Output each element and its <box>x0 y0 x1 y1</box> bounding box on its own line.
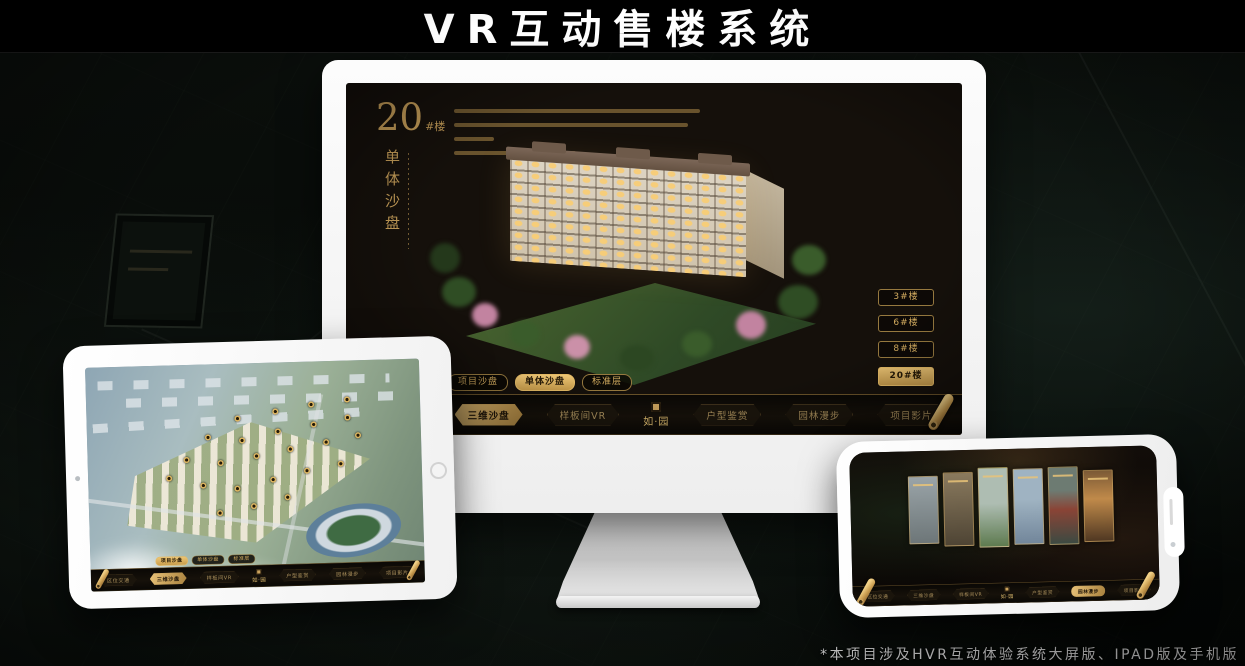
nav-left-group: 区位交通三维沙盘样板间VR <box>100 571 239 587</box>
scene-card[interactable] <box>908 476 940 545</box>
floor-button[interactable]: 6#楼 <box>878 315 934 332</box>
floor-button-group: 3#楼6#楼8#楼20#楼 <box>878 289 934 386</box>
tablet-camera-icon <box>75 476 80 481</box>
building-badge-icon <box>344 414 350 420</box>
aerial-building-row <box>126 391 410 408</box>
building-3d-render[interactable] <box>424 135 860 393</box>
tablet-home-button[interactable] <box>430 461 447 478</box>
sub-tab[interactable]: 项目沙盘 <box>155 556 188 566</box>
building-badge-icon <box>355 432 361 438</box>
nav-item[interactable]: 户型鉴赏 <box>279 568 316 581</box>
vertical-divider <box>408 153 409 249</box>
building-badge-icon <box>323 439 329 445</box>
tree-blob <box>620 345 654 371</box>
nav-item[interactable]: 样板间VR <box>547 404 620 426</box>
building-badge-icon <box>311 421 317 427</box>
background-plaque <box>104 213 214 328</box>
nav-item[interactable]: 样板间VR <box>952 588 988 600</box>
block-unit: #楼 <box>425 120 445 133</box>
tree-blob <box>778 285 818 319</box>
aerial-building-row <box>97 373 389 390</box>
nav-item[interactable]: 三维沙盘 <box>150 572 187 585</box>
building-badge-icon <box>205 434 211 440</box>
floor-button[interactable]: 20#楼 <box>878 367 934 386</box>
promo-canvas: VR互动售楼系统 20#楼 单体沙盘 <box>0 0 1245 666</box>
footnote-text: *本项目涉及HVR互动体验系统大屏版、IPAD版及手机版 <box>820 644 1239 664</box>
page-title: VR互动售楼系统 <box>0 0 1245 53</box>
tree-blob <box>564 335 590 359</box>
brand-logo: 如·园 <box>643 402 669 428</box>
nav-left-group: 区位交通三维沙盘样板间VR <box>861 588 989 602</box>
brand-seal-icon <box>1005 586 1010 591</box>
camera-dot-icon <box>1170 542 1175 547</box>
brand-logo: 如·园 <box>252 569 267 583</box>
sandtable-badges <box>85 359 419 368</box>
nav-item[interactable]: 三维沙盘 <box>907 589 941 601</box>
tree-blob <box>510 321 540 347</box>
tree-blob <box>442 277 476 307</box>
aerial-building-row <box>93 408 361 434</box>
brand-logo-text: 如·园 <box>643 413 669 428</box>
section-title-vertical: 单体沙盘 <box>382 149 403 237</box>
brand-seal-icon <box>256 569 262 575</box>
stadium <box>302 496 406 565</box>
sub-tab-bar: 项目沙盘单体沙盘标准层 <box>448 374 632 391</box>
scene-card[interactable] <box>1013 468 1045 545</box>
nav-right-group: 户型鉴赏园林漫步项目影片 <box>1025 584 1151 598</box>
brand-logo-text: 如·园 <box>252 575 266 584</box>
phone-screen: 区位交通三维沙盘样板间VR 如·园 户型鉴赏园林漫步项目影片 <box>849 445 1160 606</box>
floor-button[interactable]: 3#楼 <box>878 289 934 306</box>
nav-item[interactable]: 户型鉴赏 <box>1025 586 1059 598</box>
speaker-slot-icon <box>1169 499 1173 525</box>
scene-card[interactable] <box>978 467 1010 548</box>
scene-card[interactable] <box>943 472 975 547</box>
tree-blob <box>792 245 826 275</box>
floor-button[interactable]: 8#楼 <box>878 341 934 358</box>
tree-blob <box>430 243 460 273</box>
tablet-app-ui: 项目沙盘单体沙盘标准层 区位交通三维沙盘样板间VR 如·园 户型鉴赏园林漫步项目… <box>91 582 425 591</box>
nav-item[interactable]: 园林漫步 <box>785 404 853 426</box>
tree-blob <box>682 331 712 357</box>
tree-blob <box>736 311 766 339</box>
phone-app-ui: 区位交通三维沙盘样板间VR 如·园 户型鉴赏园林漫步项目影片 <box>853 599 1160 606</box>
nav-right-group: 户型鉴赏园林漫步项目影片 <box>279 566 416 582</box>
brand-seal-icon <box>651 402 661 412</box>
sub-tab[interactable]: 项目沙盘 <box>448 374 508 391</box>
tree-blob <box>472 303 498 327</box>
scene-card-gallery <box>908 464 1115 549</box>
building-front-face <box>510 157 746 278</box>
nav-item[interactable]: 样板间VR <box>199 571 239 584</box>
building-side-face <box>744 169 784 279</box>
tablet-device: 项目沙盘单体沙盘标准层 区位交通三维沙盘样板间VR 如·园 户型鉴赏园林漫步项目… <box>62 336 457 610</box>
scene-card[interactable] <box>1083 469 1115 542</box>
phone-notch <box>1163 487 1185 557</box>
tablet-screen: 项目沙盘单体沙盘标准层 区位交通三维沙盘样板间VR 如·园 户型鉴赏园林漫步项目… <box>85 359 425 592</box>
nav-item[interactable]: 园林漫步 <box>1071 585 1105 597</box>
block-heading: 20#楼 <box>376 99 445 137</box>
sub-tab[interactable]: 单体沙盘 <box>515 374 575 391</box>
nav-right-group: 户型鉴赏园林漫步项目影片 <box>693 404 945 426</box>
block-number: 20 <box>376 96 423 139</box>
sub-tab[interactable]: 单体沙盘 <box>192 555 225 565</box>
monitor-stand-base <box>556 596 760 608</box>
nav-item[interactable]: 园林漫步 <box>329 567 366 580</box>
sub-tab[interactable]: 标准层 <box>228 554 255 564</box>
building-badge-icon <box>308 401 314 407</box>
nav-item[interactable]: 户型鉴赏 <box>693 404 761 426</box>
building-badge-icon <box>344 396 350 402</box>
nav-item[interactable]: 三维沙盘 <box>455 404 523 426</box>
brand-logo: 如·园 <box>1000 586 1013 599</box>
sub-tab[interactable]: 标准层 <box>582 374 632 391</box>
brand-logo-text: 如·园 <box>1001 592 1014 600</box>
scene-card[interactable] <box>1048 466 1080 545</box>
phone-device: 区位交通三维沙盘样板间VR 如·园 户型鉴赏园林漫步项目影片 <box>836 434 1180 618</box>
